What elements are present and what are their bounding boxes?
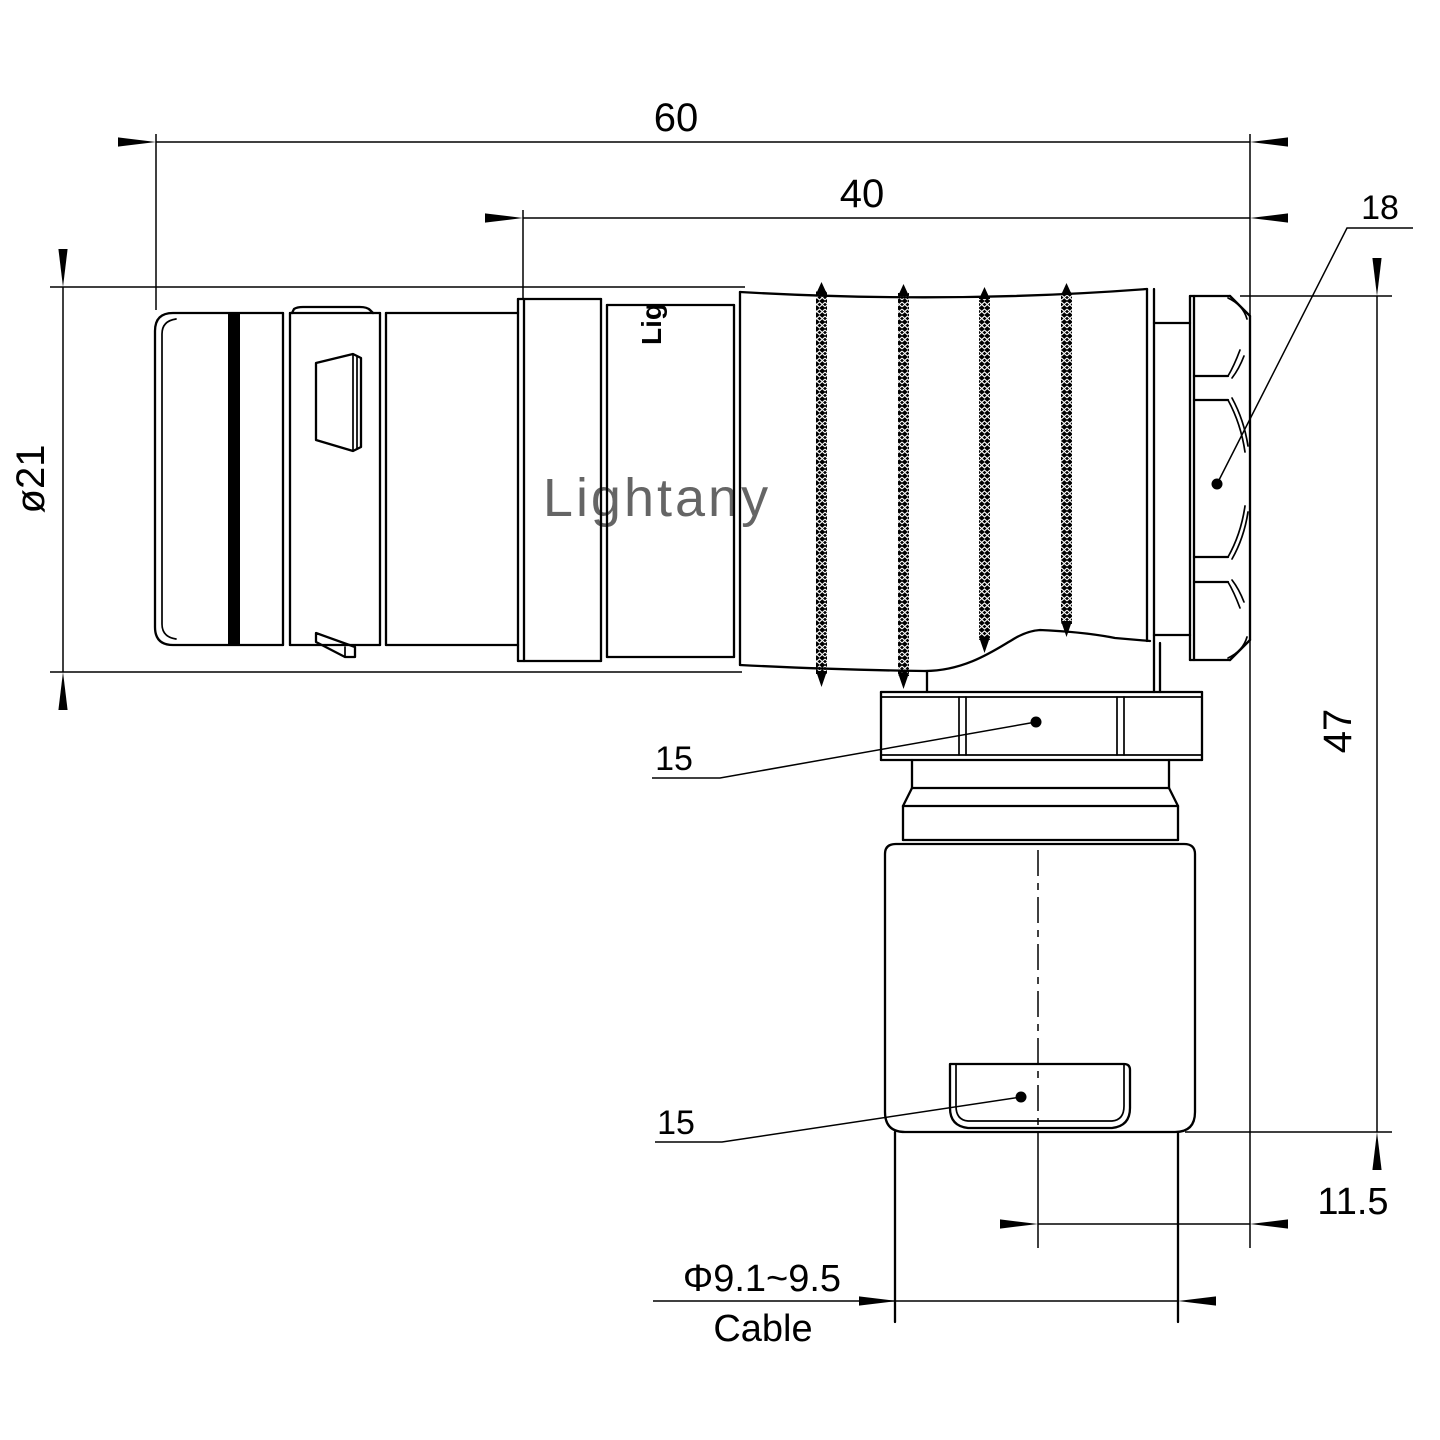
- gland-nut: [881, 692, 1202, 760]
- dim-60-label: 60: [654, 96, 699, 140]
- dimension-overall-height: 47: [1185, 296, 1392, 1132]
- dim-40-label: 40: [840, 172, 885, 216]
- callout-coupling-nut: 18: [1212, 189, 1414, 490]
- front-neck: [1154, 323, 1190, 635]
- dim-15-lower-label: 15: [657, 1104, 695, 1142]
- dimension-front-length: 40: [523, 172, 1250, 300]
- grip-knurl-band-1: [816, 282, 827, 687]
- crimp-window: [950, 1064, 1130, 1128]
- brand-mark: Lig: [636, 303, 667, 345]
- cable-label: Cable: [713, 1308, 812, 1350]
- dim-d21-label: ø21: [9, 445, 53, 514]
- watermark: Lightany: [543, 468, 771, 528]
- grip-knurl-band-3: [979, 287, 990, 653]
- elbow-neck: [927, 643, 1160, 692]
- dim-cable-diameter-label: Φ9.1~9.5: [683, 1258, 841, 1300]
- grip-knurl-band-2: [898, 284, 909, 689]
- latch-window: [316, 354, 361, 451]
- cable: [895, 1132, 1178, 1322]
- technical-drawing-canvas: Lightany: [0, 0, 1440, 1440]
- dim-11-5-label: 11.5: [1317, 1181, 1388, 1223]
- dimension-cable-diameter: Φ9.1~9.5 Cable: [653, 1258, 1178, 1350]
- knurled-grip: [740, 282, 1154, 692]
- elbow-fillet: [925, 630, 1150, 671]
- grip-knurl-band-4: [1061, 283, 1072, 637]
- callout-crimp-body: 15: [655, 1092, 1027, 1143]
- anti-rotation-band: [228, 313, 240, 645]
- connector-elbow-drawing: Lightany: [0, 0, 1440, 1440]
- rear-release-sleeve: [155, 307, 518, 657]
- dim-15-upper-label: 15: [655, 740, 693, 778]
- dimension-cable-axis-offset: 11.5: [1038, 1132, 1389, 1248]
- crimp-body: [885, 760, 1195, 1132]
- dim-18-label: 18: [1361, 189, 1399, 227]
- dim-47-label: 47: [1316, 709, 1360, 754]
- callout-gland-nut: 15: [652, 717, 1042, 779]
